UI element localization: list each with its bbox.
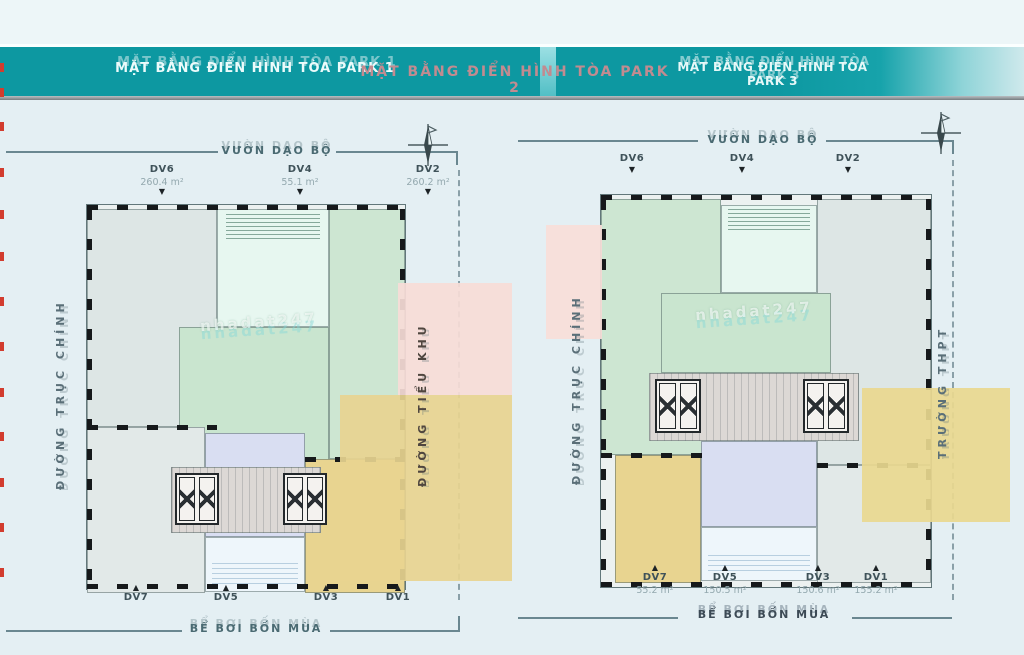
- header-underline: [0, 96, 1024, 100]
- bracket-corner: [456, 151, 458, 165]
- road-label-right: TRƯỜNG THPT: [936, 285, 949, 500]
- top-bracket-line: [518, 140, 698, 142]
- elevator-shaft-icon: [807, 383, 824, 429]
- unit-label: ▲ DV3: [296, 584, 356, 605]
- compass-north-icon: [405, 120, 451, 170]
- wall-hatch: [87, 209, 92, 584]
- pointer-down-icon: ▼: [388, 188, 468, 196]
- unit-id: DV1: [368, 592, 428, 605]
- unit-label: ▲ DV5 150.5 m²: [690, 564, 760, 596]
- unit-label: ▲ DV7: [106, 584, 166, 605]
- unit-label: DV4 ▼: [702, 153, 782, 174]
- unit-id: DV6: [122, 164, 202, 177]
- unit-id: DV1: [841, 572, 911, 585]
- pointer-down-icon: ▼: [592, 166, 672, 174]
- bottom-bracket-line: [852, 617, 952, 619]
- unit-id: DV2: [808, 153, 888, 166]
- unit-label: DV2 260.2 m² ▼: [388, 164, 468, 196]
- garden-label: VƯỜN DẠO BỘ: [700, 133, 826, 146]
- pointer-up-icon: ▲: [841, 564, 911, 572]
- elevator-shaft-icon: [680, 383, 697, 429]
- balcony-louvers: [226, 214, 320, 240]
- unit-area: 155.2 m²: [841, 585, 911, 597]
- compass-north-icon: [918, 108, 964, 158]
- balcony-louvers: [728, 209, 810, 231]
- page-canvas: MẶT BẰNG ĐIỂN HÌNH TÒA PARK 1 MẶT BẰNG Đ…: [0, 0, 1024, 655]
- elevator-core: [175, 473, 219, 525]
- pointer-down-icon: ▼: [122, 188, 202, 196]
- garden-label: VƯỜN DẠO BỘ: [218, 144, 336, 157]
- unit-label: ▲ DV1 155.2 m²: [841, 564, 911, 596]
- road-label-left: ĐƯỜNG TRỤC CHÍNH: [54, 295, 67, 495]
- unit-id: DV7: [106, 592, 166, 605]
- pointer-up-icon: ▲: [196, 584, 256, 592]
- unit-id: DV4: [702, 153, 782, 166]
- elevator-shaft-icon: [179, 477, 195, 521]
- unit-id: DV5: [690, 572, 760, 585]
- page-title-park3: MẶT BẰNG ĐIỂN HÌNH TÒA PARK 3: [665, 60, 880, 88]
- pointer-down-icon: ▼: [260, 188, 340, 196]
- elevator-shaft-icon: [287, 477, 303, 521]
- elevator-shaft-icon: [199, 477, 215, 521]
- unit-label: ▲ DV7 55.2 m²: [620, 564, 690, 596]
- bracket-corner: [458, 616, 460, 630]
- elevator-core: [655, 379, 701, 433]
- elevator-shaft-icon: [828, 383, 845, 429]
- unit-label: DV6 260.4 m² ▼: [122, 164, 202, 196]
- elevator-core: [283, 473, 327, 525]
- unit-id: DV6: [592, 153, 672, 166]
- unit-label: ▲ DV5: [196, 584, 256, 605]
- bottom-bracket-line: [518, 617, 678, 619]
- road-label-left: ĐƯỜNG TRỤC CHÍNH: [570, 285, 583, 495]
- page-title-park2: MẶT BẰNG ĐIỂN HÌNH TÒA PARK 2: [360, 64, 670, 96]
- unit-id: DV5: [196, 592, 256, 605]
- road-label-right: ĐƯỜNG TIỂU KHU: [416, 300, 429, 510]
- top-bracket-line: [6, 151, 218, 153]
- unit-label: DV6 ▼: [592, 153, 672, 174]
- wall-hatch: [87, 205, 405, 210]
- pointer-down-icon: ▼: [702, 166, 782, 174]
- unit-id: DV2: [388, 164, 468, 177]
- elevator-shaft-icon: [659, 383, 676, 429]
- pointer-up-icon: ▲: [296, 584, 356, 592]
- wall-hatch: [601, 195, 931, 200]
- elevator-core: [803, 379, 849, 433]
- pointer-up-icon: ▲: [106, 584, 166, 592]
- bottom-bracket-line: [6, 630, 182, 632]
- unit-area: 150.5 m²: [690, 585, 760, 597]
- courtyard-block-mint: [721, 205, 817, 293]
- pointer-up-icon: ▲: [620, 564, 690, 572]
- unit-label: ▲ DV1: [368, 584, 428, 605]
- wall-hatch: [601, 453, 721, 458]
- pool-label: BỂ BƠI BỐN MÙA: [186, 622, 326, 635]
- boundary-dashed-line: [952, 160, 954, 600]
- header-strip: [0, 0, 1024, 44]
- pool-lines: [212, 563, 298, 585]
- pool-label: BỂ BƠI BỐN MÙA: [684, 608, 844, 621]
- unit-id: DV3: [296, 592, 356, 605]
- pointer-up-icon: ▲: [368, 584, 428, 592]
- elevator-shaft-icon: [307, 477, 323, 521]
- unit-id: DV7: [620, 572, 690, 585]
- unit-area: 55.2 m²: [620, 585, 690, 597]
- bottom-bracket-line: [330, 630, 460, 632]
- pointer-down-icon: ▼: [808, 166, 888, 174]
- unit-label: DV2 ▼: [808, 153, 888, 174]
- unit-label: DV4 55.1 m² ▼: [260, 164, 340, 196]
- unit-id: DV4: [260, 164, 340, 177]
- pointer-up-icon: ▲: [690, 564, 760, 572]
- wall-hatch: [87, 425, 217, 430]
